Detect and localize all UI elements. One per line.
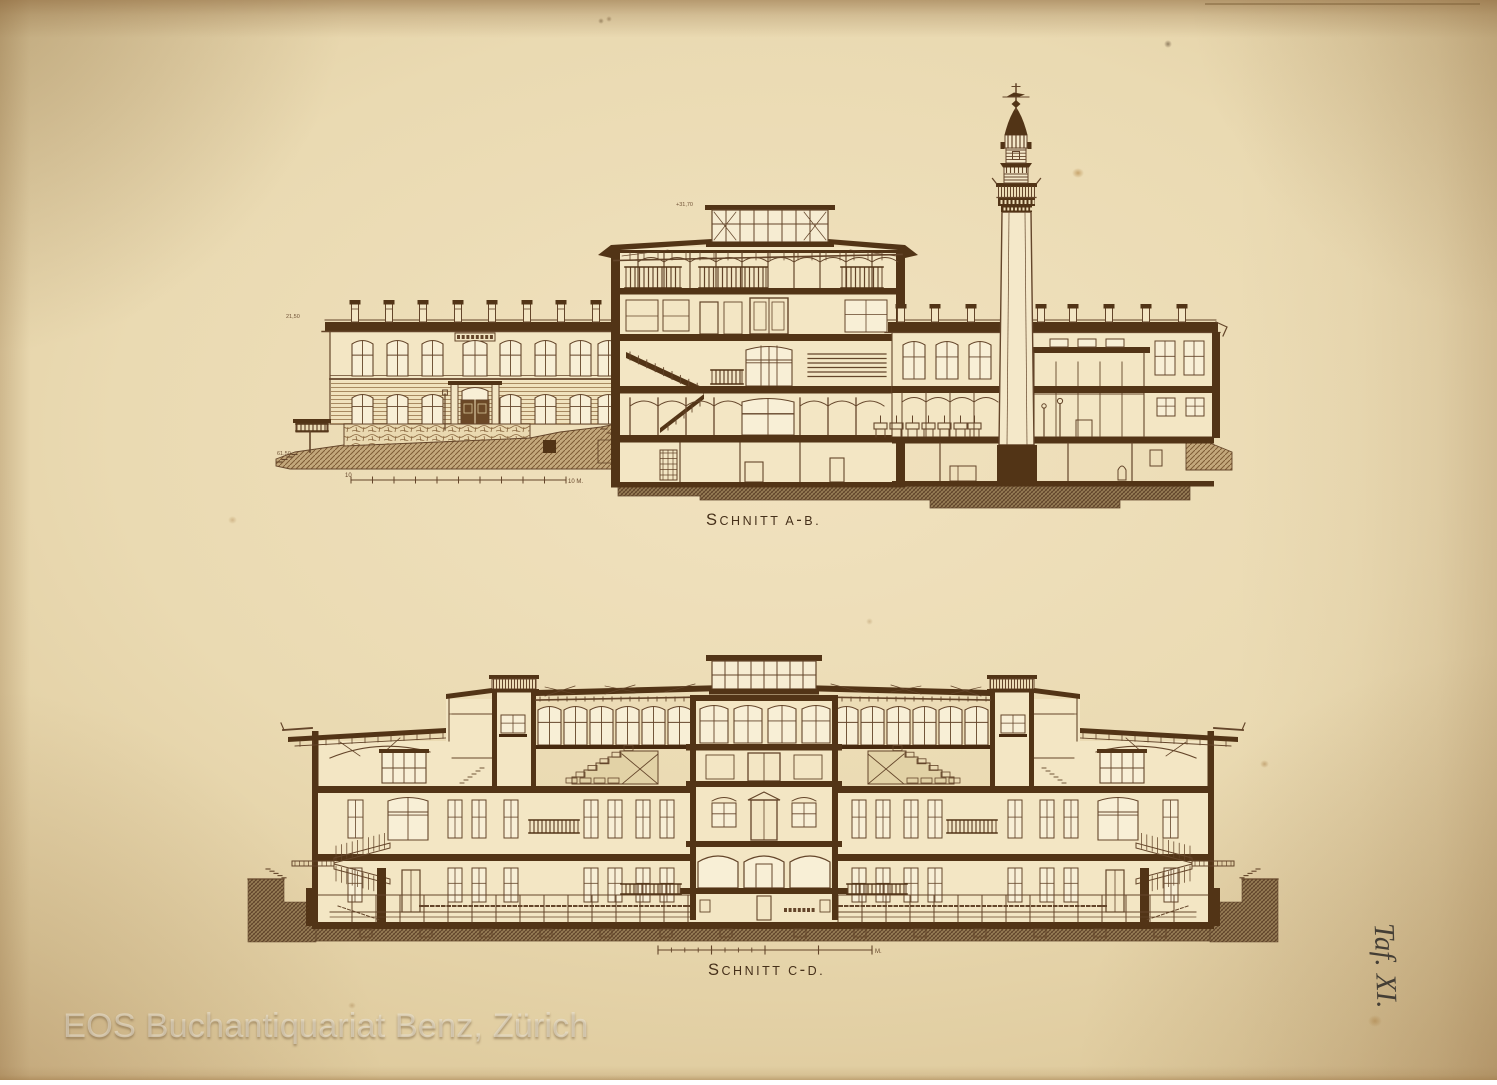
svg-text:10 M.: 10 M. — [568, 479, 583, 485]
svg-text:M.: M. — [875, 949, 882, 955]
svg-text:10: 10 — [345, 473, 352, 479]
svg-text:21,50: 21,50 — [286, 314, 300, 320]
svg-text:SCHNITT A-B.: SCHNITT A-B. — [706, 511, 821, 529]
svg-text:61,50: 61,50 — [277, 451, 291, 457]
svg-text:+31,70: +31,70 — [676, 202, 693, 208]
svg-text:SCHNITT C-D.: SCHNITT C-D. — [708, 961, 825, 979]
